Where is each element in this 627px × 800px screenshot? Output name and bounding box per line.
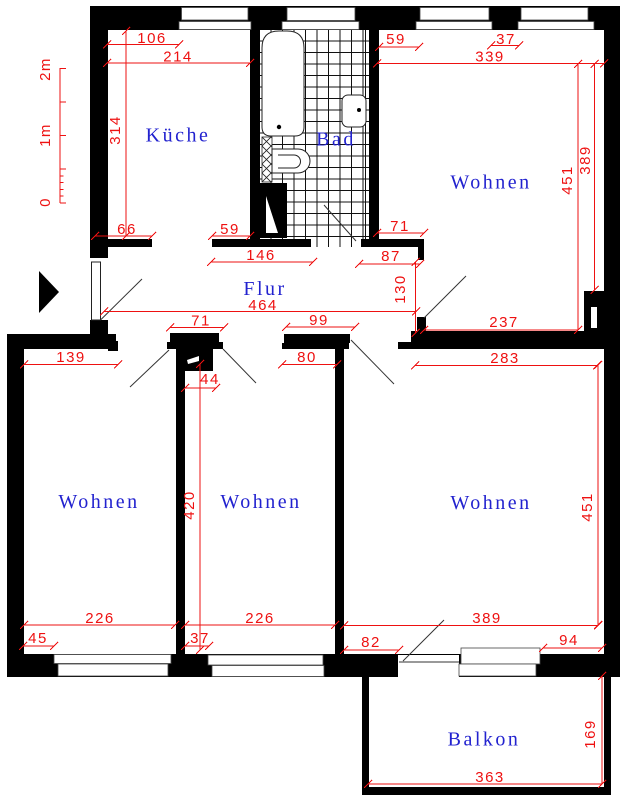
svg-text:106: 106 — [137, 30, 167, 47]
svg-text:59: 59 — [220, 221, 240, 238]
svg-text:451: 451 — [559, 165, 576, 195]
svg-text:Wohnen: Wohnen — [220, 491, 301, 513]
svg-text:Wohnen: Wohnen — [450, 492, 531, 514]
svg-text:283: 283 — [490, 350, 520, 367]
svg-text:0: 0 — [37, 197, 54, 207]
svg-text:45: 45 — [28, 630, 48, 647]
svg-text:37: 37 — [190, 630, 210, 647]
svg-text:71: 71 — [390, 218, 410, 235]
svg-text:Wohnen: Wohnen — [450, 172, 531, 194]
svg-text:Balkon: Balkon — [448, 729, 521, 751]
svg-text:146: 146 — [246, 247, 276, 264]
svg-text:389: 389 — [577, 145, 594, 175]
svg-text:66: 66 — [117, 221, 137, 238]
svg-text:237: 237 — [489, 314, 519, 331]
svg-text:226: 226 — [245, 610, 275, 627]
svg-text:71: 71 — [191, 313, 211, 330]
svg-text:82: 82 — [361, 634, 381, 651]
svg-text:2m: 2m — [37, 57, 54, 81]
svg-text:99: 99 — [309, 312, 329, 329]
svg-text:420: 420 — [181, 490, 198, 520]
svg-text:80: 80 — [297, 349, 317, 366]
svg-text:451: 451 — [579, 492, 596, 522]
svg-text:Bad: Bad — [316, 129, 356, 151]
svg-text:37: 37 — [496, 31, 516, 48]
svg-text:464: 464 — [248, 297, 278, 314]
svg-text:214: 214 — [163, 49, 193, 66]
svg-text:44: 44 — [200, 371, 220, 388]
svg-text:339: 339 — [475, 49, 505, 66]
svg-text:363: 363 — [475, 769, 505, 786]
svg-text:87: 87 — [381, 248, 401, 265]
svg-text:314: 314 — [107, 115, 124, 145]
svg-text:130: 130 — [392, 274, 409, 304]
svg-text:Küche: Küche — [146, 125, 211, 147]
svg-text:94: 94 — [559, 632, 579, 649]
svg-text:59: 59 — [386, 31, 406, 48]
svg-text:389: 389 — [472, 610, 502, 627]
svg-text:226: 226 — [85, 610, 115, 627]
svg-text:139: 139 — [56, 349, 86, 366]
svg-text:Wohnen: Wohnen — [58, 491, 139, 513]
svg-text:1m: 1m — [37, 123, 54, 147]
svg-text:169: 169 — [582, 719, 599, 749]
